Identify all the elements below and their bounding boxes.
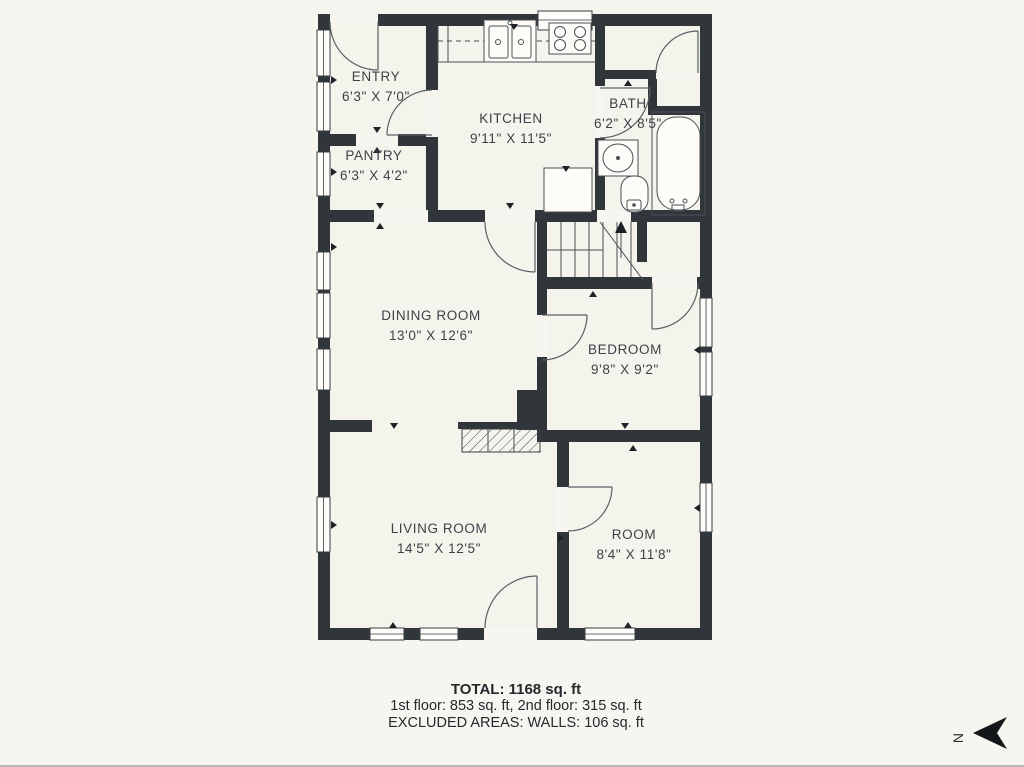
area-summary: TOTAL: 1168 sq. ft 1st floor: 853 sq. ft… [388,681,644,732]
room-label-bath: BATH 6'2" X 8'5" [594,94,662,134]
room-name: ROOM [597,525,672,545]
total-area: TOTAL: 1168 sq. ft [388,681,644,698]
room-name: LIVING ROOM [391,519,488,539]
refrigerator [544,166,592,212]
chimney [517,390,545,430]
room-dims: 13'0" X 12'6" [381,326,481,346]
bath-sink [598,140,638,176]
north-label: N [950,733,966,743]
room-label-kitchen: KITCHEN 9'11" X 11'5" [470,109,552,149]
room-name: PANTRY [340,146,408,166]
stove [549,23,591,54]
room-dims: 9'11" X 11'5" [470,129,552,149]
room-dims: 6'3" X 7'0" [342,87,410,107]
room-dims: 9'8" X 9'2" [588,360,662,380]
room-name: DINING ROOM [381,306,481,326]
fireplace [462,429,540,452]
room-dims: 6'2" X 8'5" [594,114,662,134]
floor-areas: 1st floor: 853 sq. ft, 2nd floor: 315 sq… [388,698,644,715]
room-name: BATH [594,94,662,114]
room-label-entry: ENTRY 6'3" X 7'0" [342,67,410,107]
excluded-areas: EXCLUDED AREAS: WALLS: 106 sq. ft [388,715,644,732]
room-label-pantry: PANTRY 6'3" X 4'2" [340,146,408,186]
room-dims: 8'4" X 11'8" [597,545,672,565]
room-label-room: ROOM 8'4" X 11'8" [597,525,672,565]
north-arrow: N [950,717,1007,749]
toilet [621,176,648,212]
room-name: BEDROOM [588,340,662,360]
room-name: ENTRY [342,67,410,87]
kitchen-sink [484,20,536,62]
room-dims: 14'5" X 12'5" [391,539,488,559]
room-name: KITCHEN [470,109,552,129]
room-label-dining-room: DINING ROOM 13'0" X 12'6" [381,306,481,346]
room-dims: 6'3" X 4'2" [340,166,408,186]
north-arrow-dart [973,717,1007,749]
room-label-bedroom: BEDROOM 9'8" X 9'2" [588,340,662,380]
room-label-living-room: LIVING ROOM 14'5" X 12'5" [391,519,488,559]
